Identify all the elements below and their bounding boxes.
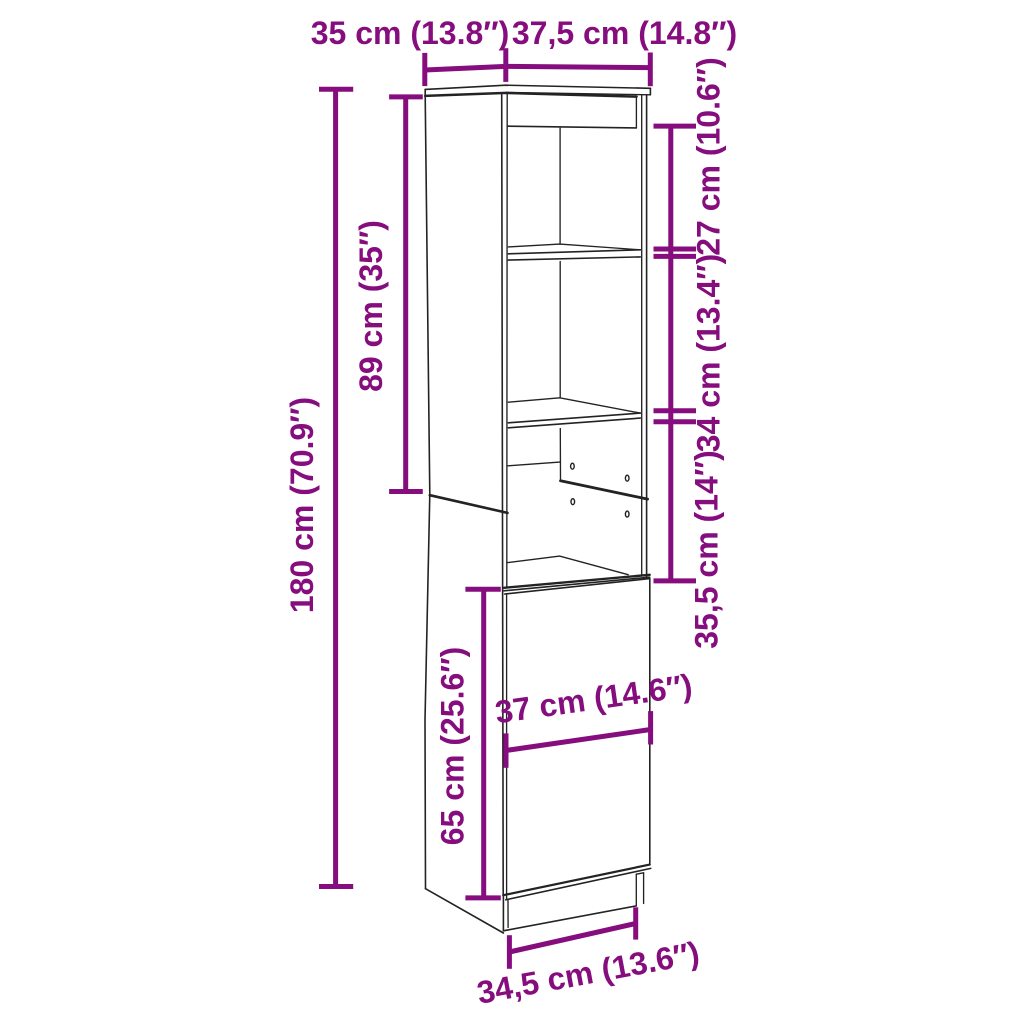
svg-text:35,5 cm (14″): 35,5 cm (14″)	[689, 450, 725, 649]
svg-text:34 cm (13.4″): 34 cm (13.4″)	[691, 254, 727, 453]
svg-text:37,5 cm (14.8″): 37,5 cm (14.8″)	[512, 15, 737, 51]
svg-text:27 cm (10.6″): 27 cm (10.6″)	[691, 57, 727, 256]
svg-text:180 cm (70.9″): 180 cm (70.9″)	[284, 397, 320, 613]
svg-text:65 cm (25.6″): 65 cm (25.6″)	[435, 647, 471, 846]
svg-text:35 cm (13.8″): 35 cm (13.8″)	[311, 15, 510, 51]
svg-text:89 cm (35″): 89 cm (35″)	[353, 220, 389, 392]
